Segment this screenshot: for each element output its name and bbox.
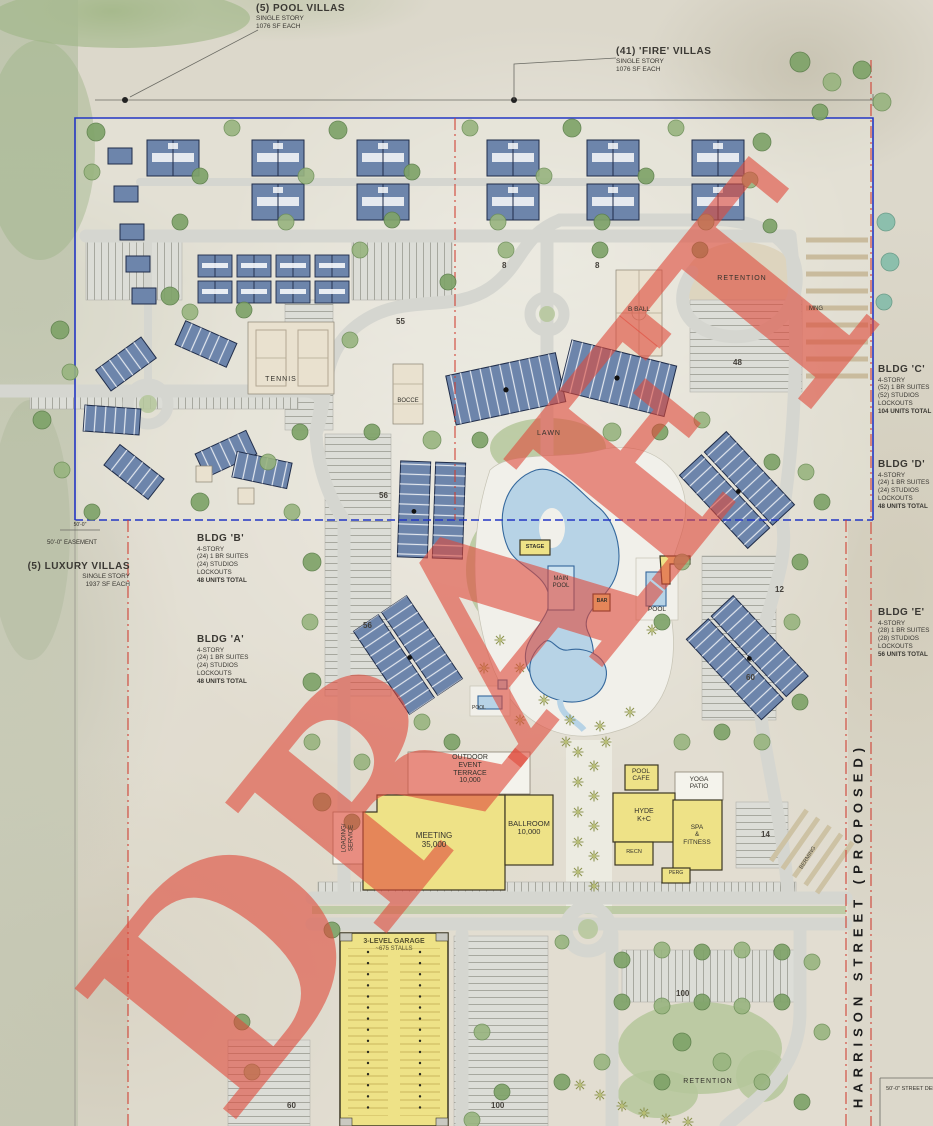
pool-villas-sub2: 1076 SF EACH (256, 23, 345, 31)
pool-complex (470, 447, 686, 736)
bldg-b-name: BLDG 'B' (197, 533, 248, 546)
bldg-b-studios: (24) STUDIOS (197, 561, 248, 569)
pool-cafe-label: POOL CAFE (632, 768, 650, 783)
pool-label: POOL (648, 606, 666, 613)
site-plan-graphics (0, 0, 933, 1126)
count-56b: 56 (363, 621, 372, 630)
loading-label: LOADING/ SERVICE (341, 824, 354, 853)
parking-garage (340, 933, 448, 1126)
hyde-label: HYDE K+C (634, 808, 653, 824)
stage-label: STAGE (526, 544, 545, 550)
main-pool-line2: POOL (553, 583, 570, 590)
luxury-villas-sub2: 1937 SF EACH (18, 581, 130, 589)
main-pool-label: MAIN POOL (553, 576, 570, 589)
bldg-c-name: BLDG 'C' (878, 364, 931, 377)
bldg-e-note: BLDG 'E' 4-STORY (28) 1 BR SUITES (28) S… (878, 607, 929, 659)
count-100b: 100 (676, 989, 689, 998)
bldg-e-name: BLDG 'E' (878, 607, 929, 620)
bldg-c-lockouts: LOCKOUTS (878, 400, 931, 408)
perg-label: PERG (669, 871, 683, 877)
bldg-e-studios: (28) STUDIOS (878, 635, 929, 643)
bldg-a-suites: (24) 1 BR SUITES (197, 654, 248, 662)
count-60b: 60 (287, 1101, 296, 1110)
bldg-d-name: BLDG 'D' (878, 459, 929, 472)
bldg-e-suites: (28) 1 BR SUITES (878, 627, 929, 635)
spa-line2: & (683, 831, 710, 838)
pool-villas-note: (5) POOL VILLAS SINGLE STORY 1076 SF EAC… (256, 3, 345, 31)
street-dedication-label: 50'-0" STREET DEDI (886, 1086, 933, 1092)
terrace-line4: 10,000 (452, 777, 488, 785)
recn-label: RECN (626, 849, 642, 855)
easement-label: 50'-0" EASEMENT (47, 540, 97, 547)
bldg-b-story: 4-STORY (197, 546, 248, 554)
count-8a: 8 (502, 261, 506, 270)
spa-line3: FITNESS (683, 839, 710, 846)
loading-line2: SERVICE (348, 824, 355, 853)
terrace-line1: OUTDOOR (452, 754, 488, 762)
bldg-a-name: BLDG 'A' (197, 634, 248, 647)
garage-line1: 3-LEVEL GARAGE (363, 938, 424, 946)
retention-bottom-label: RETENTION (683, 1078, 732, 1086)
bldg-d-suites: (24) 1 BR SUITES (878, 479, 929, 487)
count-48: 48 (733, 358, 742, 367)
bldg-c-studios: (52) STUDIOS (878, 392, 931, 400)
ballroom-line2: 10,000 (508, 828, 550, 836)
terrace-label: OUTDOOR EVENT TERRACE 10,000 (452, 754, 488, 785)
meeting-line2: 35,000 (416, 841, 452, 850)
easement-dim: 50'-0" (74, 523, 87, 529)
pool-villas-title: (5) POOL VILLAS (256, 3, 345, 15)
yoga-line2: PATIO (690, 783, 709, 790)
terrace-line3: TERRACE (452, 770, 488, 778)
count-100a: 100 (491, 1101, 504, 1110)
bldg-b-note: BLDG 'B' 4-STORY (24) 1 BR SUITES (24) S… (197, 533, 248, 585)
luxury-villas-note: (5) LUXURY VILLAS SINGLE STORY 1937 SF E… (18, 561, 130, 589)
yoga-line1: YOGA (690, 776, 709, 783)
bldg-e-story: 4-STORY (878, 620, 929, 628)
loading-line1: LOADING/ (341, 824, 348, 853)
ballroom-label: BALLROOM 10,000 (508, 820, 550, 837)
bldg-b-suites: (24) 1 BR SUITES (197, 553, 248, 561)
count-60a: 60 (746, 673, 755, 682)
lawn-label: LAWN (537, 430, 561, 438)
site-plan: DRAFT (5) POOL VILLAS SINGLE STORY 1076 … (0, 0, 933, 1126)
garage-label: 3-LEVEL GARAGE ~675 STALLS (363, 938, 424, 953)
hyde-line1: HYDE (634, 808, 653, 816)
harrison-street-label: HARRISON STREET (PROPOSED) (851, 742, 866, 1108)
count-56a: 56 (379, 491, 388, 500)
yoga-label: YOGA PATIO (690, 776, 709, 791)
bldg-a-studios: (24) STUDIOS (197, 662, 248, 670)
count-8b: 8 (595, 261, 599, 270)
bldg-a-lockouts: LOCKOUTS (197, 670, 248, 678)
fire-villas-note: (41) 'FIRE' VILLAS SINGLE STORY 1076 SF … (616, 46, 711, 74)
hyde-line2: K+C (634, 816, 653, 824)
count-12: 12 (775, 585, 784, 594)
bldg-a-total: 48 UNITS TOTAL (197, 678, 248, 686)
bldg-a-story: 4-STORY (197, 647, 248, 655)
terrace-line2: EVENT (452, 762, 488, 770)
bball-label: B BALL (628, 306, 650, 313)
bldg-b-lockouts: LOCKOUTS (197, 569, 248, 577)
main-pool-line1: MAIN (553, 576, 570, 583)
bldg-c-suites: (52) 1 BR SUITES (878, 384, 931, 392)
retention-top-label: RETENTION (717, 275, 766, 283)
fire-villas-title: (41) 'FIRE' VILLAS (616, 46, 711, 58)
luxury-villas-sub1: SINGLE STORY (18, 573, 130, 581)
garage-line2: ~675 STALLS (363, 946, 424, 953)
mng-label: MNG (809, 306, 823, 313)
fire-villas-sub1: SINGLE STORY (616, 58, 711, 66)
fire-villas-sub2: 1076 SF EACH (616, 66, 711, 74)
count-55: 55 (396, 317, 405, 326)
bldg-c-story: 4-STORY (878, 377, 931, 385)
spa-label: SPA & FITNESS (683, 824, 710, 846)
bldg-a-note: BLDG 'A' 4-STORY (24) 1 BR SUITES (24) S… (197, 634, 248, 686)
bldg-e-total: 56 UNITS TOTAL (878, 651, 929, 659)
bldg-d-total: 48 UNITS TOTAL (878, 503, 929, 511)
bldg-e-lockouts: LOCKOUTS (878, 643, 929, 651)
bldg-d-story: 4-STORY (878, 472, 929, 480)
bldg-d-studios: (24) STUDIOS (878, 487, 929, 495)
bldg-d-lockouts: LOCKOUTS (878, 495, 929, 503)
count-14: 14 (761, 830, 770, 839)
meeting-label: MEETING 35,000 (416, 832, 452, 850)
pool-small-label: POOL (472, 706, 486, 712)
bldg-c-note: BLDG 'C' 4-STORY (52) 1 BR SUITES (52) S… (878, 364, 931, 416)
pool-villas-sub1: SINGLE STORY (256, 15, 345, 23)
bldg-c-total: 104 UNITS TOTAL (878, 408, 931, 416)
bar-label: BAR (597, 599, 608, 605)
spa-line1: SPA (683, 824, 710, 831)
luxury-villas-title: (5) LUXURY VILLAS (18, 561, 130, 573)
bldg-b-total: 48 UNITS TOTAL (197, 577, 248, 585)
bldg-d-note: BLDG 'D' 4-STORY (24) 1 BR SUITES (24) S… (878, 459, 929, 511)
pool-cafe-line2: CAFE (632, 775, 650, 782)
tennis-label: TENNIS (265, 376, 297, 384)
bocce-label: BOCCE (397, 398, 418, 405)
pool-cafe-line1: POOL (632, 768, 650, 775)
